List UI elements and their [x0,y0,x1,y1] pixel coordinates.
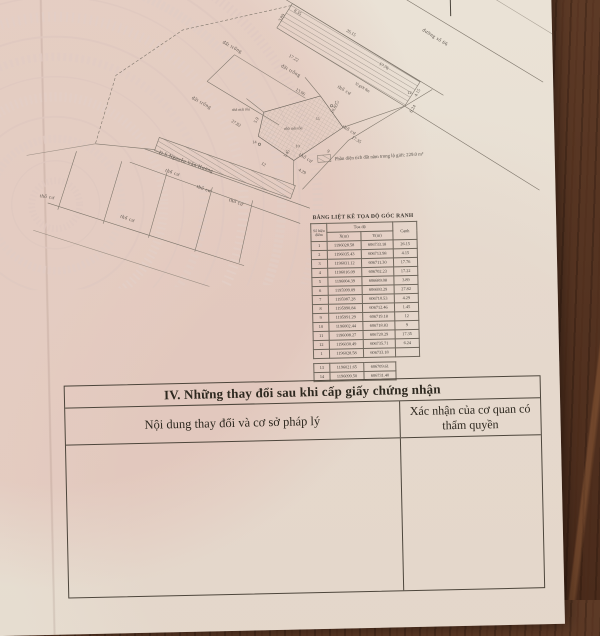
svg-text:12: 12 [407,90,411,95]
svg-text:27.82: 27.82 [230,118,242,128]
svg-text:11: 11 [316,116,320,121]
coord-cell: 12 [313,340,329,349]
coord-cell [395,347,419,357]
coord-row: 11196028.58606733.18 [313,347,419,358]
svg-text:4.29: 4.29 [298,167,308,176]
authority-cell [401,435,545,590]
svg-text:26.15: 26.15 [345,28,357,38]
coord-cell: 606733.18 [363,348,395,358]
certificate-paper: đường số 66 lộ giới 8m Đ.S Nguyễn Văn Hư… [0,0,565,636]
col-header-point: Số hiệu điểm [311,223,327,241]
col-header-change-content: Nội dung thay đổi và cơ sở pháp lý [65,401,400,444]
svg-text:12: 12 [260,161,267,168]
coordinate-table-title: BẢNG LIỆT KÊ TỌA ĐỘ GÓC RANH [310,213,416,221]
coord-cell: 10 [313,322,329,331]
coord-cell: 13 [314,363,330,372]
residential-label: thổ cư [228,197,244,208]
svg-text:13: 13 [334,100,338,105]
boundary-extension [405,103,540,193]
coord-cell: 3 [311,259,327,268]
coord-cell: 4 [312,268,328,277]
section-iv: IV. Những thay đổi sau khi cấp giấy chứn… [64,375,546,598]
legend-text: Phần diện tích đất nằm trong lộ giới: 22… [335,151,424,162]
col-header-authority-confirmation: Xác nhận của cơ quan có thẩm quyền [400,398,541,437]
coord-table-body: 11196028.58606733.1826.1521196035.436067… [311,239,420,358]
house-label: nhà mái tôn [232,107,251,111]
coord-cell: 8 [312,304,328,313]
svg-text:9: 9 [326,148,331,154]
cadastral-map: đường số 66 lộ giới 8m Đ.S Nguyễn Văn Hư… [0,0,557,291]
coord-cell: 9 [313,313,329,322]
coord-cell: 7 [312,295,328,304]
coord-cell: 1 [313,349,329,358]
road-name-label: đường số 66 [421,28,449,48]
north-arrow-icon [445,0,456,16]
svg-text:6.24: 6.24 [408,103,417,113]
svg-text:17.22: 17.22 [288,53,300,63]
road-top-outer-edge [383,0,543,86]
col-header-edge: Cạnh [393,221,417,240]
coord-cell: 2 [311,250,327,259]
hatch-swatch-icon [318,155,331,163]
svg-text:10: 10 [295,143,299,148]
residential-label: thổ cư [39,193,55,201]
coord-cell: 5 [312,277,328,286]
coordinate-table: BẢNG LIỆT KÊ TỌA ĐỘ GÓC RANH Số hiệu điể… [310,213,420,382]
coord-cell: 1196028.58 [329,349,363,359]
residential-label: thổ cư [298,152,314,165]
svg-text:5.9: 5.9 [253,116,261,124]
svg-text:14: 14 [252,139,257,144]
change-content-cell [66,438,404,597]
section-iv-empty-row [66,435,544,597]
residential-label: thổ cư [336,84,352,97]
coord-cell: 6 [312,286,328,295]
residential-label: thổ cư [119,214,135,225]
svg-text:17.35: 17.35 [351,135,363,145]
coord-cell: 11 [313,331,329,340]
house-label: nhà mái tôn [284,126,303,130]
coord-cell: 1 [311,241,327,250]
photo-of-land-certificate: { "document": { "map": { "legend_text": … [0,0,600,600]
